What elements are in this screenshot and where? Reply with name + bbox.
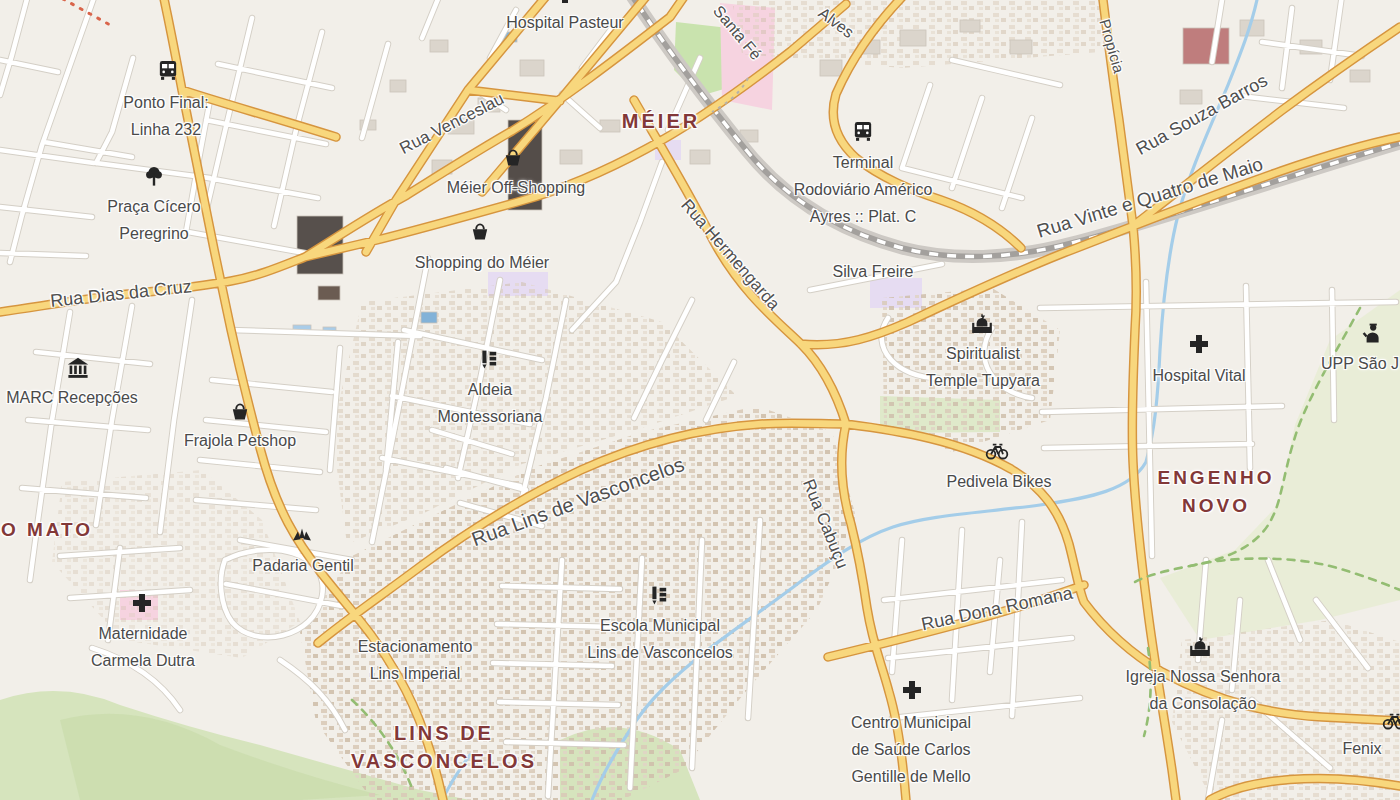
poi-label-line: Linha 232 [123,116,208,143]
poi-label-line: Maternidade [91,620,195,647]
poi-label: Padaria Gentil [252,552,353,579]
street-name-label: Rua Cabuçu [798,476,852,571]
school-icon [477,347,501,371]
bicycle-icon [985,438,1009,462]
poi-label-line: Hospital Vital [1152,362,1245,389]
neighborhood-label: LINS DEVASCONCELOS [351,719,537,775]
neighborhood-label-line: VASCONCELOS [351,747,537,775]
poi-label: EstacionamentoLins Imperial [358,633,473,687]
labels-layer: MÉIERENGENHONOVOO MATOLINS DEVASCONCELOS… [0,0,1400,800]
neighborhood-label-line: MÉIER [622,107,700,135]
poi-label-line: Lins Imperial [358,660,473,687]
poi-label: Fenix [1342,735,1381,762]
poi-label-line: Carmela Dutra [91,647,195,674]
poi-label: TerminalRodoviário AméricoAyres :: Plat.… [794,149,933,230]
poi-label-line: Méier Off-Shopping [447,174,585,201]
neighborhood-label-line: ENGENHO [1157,464,1274,492]
street-name-label: Rua Vinte e Quatro de Maio [1034,153,1265,243]
street-name-label: Rua Lins de Vasconcelos [469,453,688,551]
poi-label: Méier Off-Shopping [447,174,585,201]
neighborhood-label: O MATO [1,516,93,544]
poi-label-line: Silva Freire [833,258,914,285]
poi-label: Praça CíceroPeregrino [107,193,200,247]
poi-label: AldeiaMontessoriana [438,376,543,430]
poi-label: Shopping do Méier [415,249,549,276]
street-name-label: Propícia [1096,17,1128,75]
poi-label-line: Frajola Petshop [184,427,296,454]
poi-label-line: Estacionamento [358,633,473,660]
poi-label-line: Pedivela Bikes [947,468,1052,495]
poi-label: Pedivela Bikes [947,468,1052,495]
street-name-label: Alves [815,4,857,42]
basket-icon [501,145,525,169]
street-name-label: Rua Dona Romana [919,583,1074,636]
poi-label-line: Temple Tupyara [926,367,1040,394]
neighborhood-label-line: O MATO [1,516,93,544]
poi-label: Silva Freire [833,258,914,285]
map-canvas[interactable]: MÉIERENGENHONOVOO MATOLINS DEVASCONCELOS… [0,0,1400,800]
poi-label: Ponto Final:Linha 232 [123,89,208,143]
poi-label-line: Ponto Final: [123,89,208,116]
poi-label-line: MARC Recepções [6,384,138,411]
neighborhood-label-line: NOVO [1157,492,1274,520]
poi-label-line: Terminal [794,149,933,176]
basket-icon [228,399,252,423]
poi-label-line: Ayres :: Plat. C [794,203,933,230]
street-name-label: Santa Fé [709,2,765,63]
poi-label-line: UPP São J [1321,350,1399,377]
poi-label: Hospital Pasteur [506,9,623,36]
poi-label-line: Gentille de Mello [851,763,971,790]
poi-label-line: Escola Municipal [587,612,733,639]
poi-label: Frajola Petshop [184,427,296,454]
poi-label: UPP São J [1321,350,1399,377]
poi-label-line: Hospital Pasteur [506,9,623,36]
poi-label-line: de Saúde Carlos [851,736,971,763]
bus-icon [156,58,180,82]
poi-label: MARC Recepções [6,384,138,411]
cross-icon [900,678,924,702]
school-icon [647,583,671,607]
poi-label: Hospital Vital [1152,362,1245,389]
street-name-label: Rua Dias da Cruz [49,276,192,312]
neighborhood-label: MÉIER [622,107,700,135]
street-name-label: Rua Hermengarda [677,196,784,315]
museum-icon [66,356,90,380]
poi-label-line: Rodoviário Américo [794,176,933,203]
poi-label-line: Fenix [1342,735,1381,762]
poi-label-line: Igreja Nossa Senhora [1126,663,1281,690]
poi-label-line: Centro Municipal [851,709,971,736]
poi-label-line: Praça Cícero [107,193,200,220]
poi-label-line: Spiritualist [926,340,1040,367]
poi-label-line: Aldeia [438,376,543,403]
poi-label: Igreja Nossa Senhorada Consolação [1126,663,1281,717]
poi-label: Escola MunicipalLins de Vasconcelos [587,612,733,666]
poi-label-line: Shopping do Méier [415,249,549,276]
poi-label-line: Peregrino [107,220,200,247]
poi-label: MaternidadeCarmela Dutra [91,620,195,674]
temple-icon [970,312,994,336]
temple-icon [1188,635,1212,659]
cross-icon [130,591,154,615]
police-icon [1360,321,1384,345]
tree-icon [142,164,166,188]
poi-label-line: Padaria Gentil [252,552,353,579]
poi-label-line: da Consolação [1126,690,1281,717]
poi-label-line: Montessoriana [438,403,543,430]
poi-label: SpiritualistTemple Tupyara [926,340,1040,394]
bicycle-icon [1382,708,1400,732]
neighborhood-label: ENGENHONOVO [1157,464,1274,520]
poi-label: Centro Municipalde Saúde CarlosGentille … [851,709,971,790]
bus-icon [851,119,875,143]
street-name-label: Rua Venceslau [397,89,508,159]
cross-icon [1187,332,1211,356]
cross-icon [553,0,577,6]
basket-icon [468,219,492,243]
bakery-icon [290,523,314,547]
neighborhood-label-line: LINS DE [351,719,537,747]
street-name-label: Rua Souza Barros [1133,70,1272,160]
poi-label-line: Lins de Vasconcelos [587,639,733,666]
